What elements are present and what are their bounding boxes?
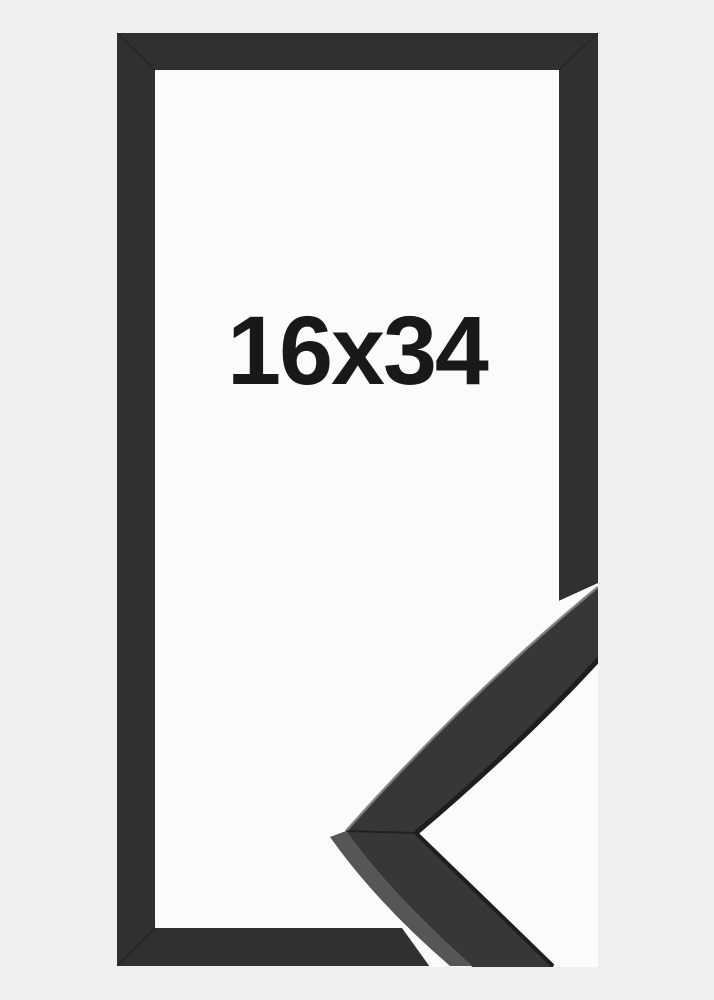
size-label: 16x34 — [227, 296, 489, 405]
product-photo: 16x34 — [0, 0, 714, 1000]
